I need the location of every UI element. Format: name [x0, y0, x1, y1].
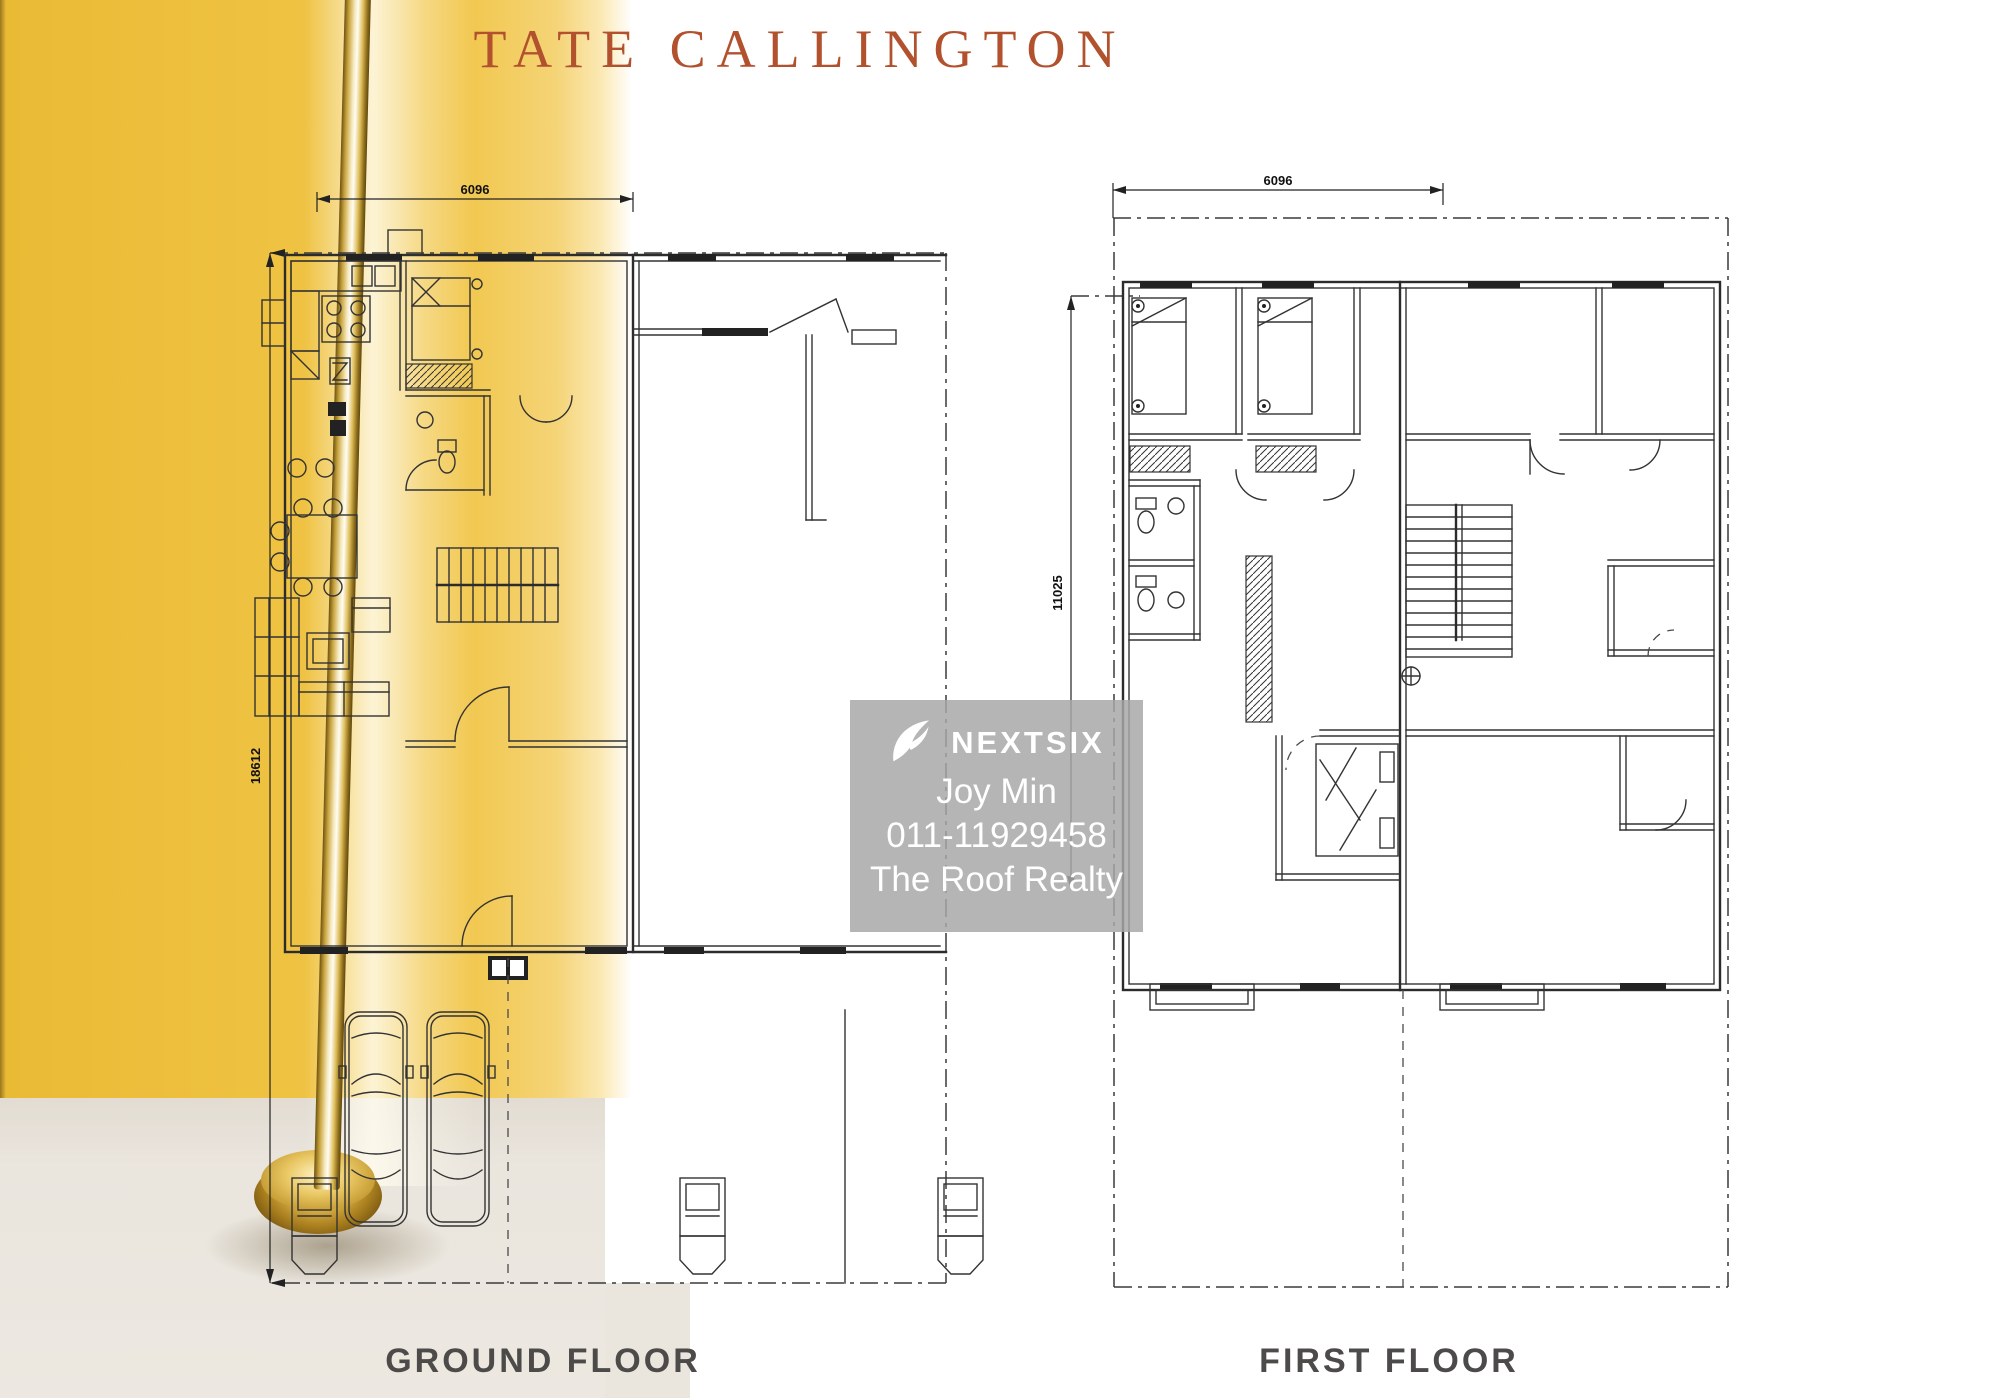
car-icon	[421, 1012, 495, 1226]
watermark-brand: NEXTSIX	[951, 725, 1105, 761]
first-lot-boundary	[1113, 218, 1728, 1287]
watermark-agent: Joy Min	[850, 770, 1143, 814]
watermark-phone: 011-11929458	[850, 814, 1143, 858]
gate-post-icon	[680, 1178, 725, 1274]
first-rear-yard	[1150, 984, 1544, 1287]
sofa-icon	[255, 598, 390, 716]
stairs-icon	[437, 548, 558, 622]
watermark-header: NEXTSIX	[850, 716, 1143, 770]
nextsix-logo-icon	[888, 716, 942, 770]
first-width-dim: 6096	[1264, 173, 1293, 188]
watermark-agency: The Roof Realty	[850, 858, 1143, 902]
car-icon	[339, 1012, 413, 1226]
ground-walls	[285, 230, 946, 954]
car-porch	[292, 958, 983, 1283]
first-walls	[1123, 281, 1720, 990]
ground-dimension-lines: 6096 18612	[248, 182, 633, 1283]
bathroom-icon	[406, 364, 572, 495]
kitchen-icon	[262, 261, 401, 436]
first-floor-label: FIRST FLOOR	[1139, 1342, 1639, 1381]
first-stairs-icon	[1406, 505, 1512, 657]
gate-post-icon	[938, 1178, 983, 1274]
first-master-bedroom	[1246, 556, 1420, 880]
page-title: TATE CALLINGTON	[385, 18, 1215, 80]
accent-panel-edge	[0, 0, 6, 1098]
first-depth-dim: 11025	[1050, 575, 1065, 610]
first-right-unit	[1406, 288, 1714, 830]
first-bedrooms	[1129, 288, 1360, 500]
first-bathrooms	[1129, 480, 1200, 640]
ground-depth-dim: 18612	[248, 748, 263, 784]
gate-post-icon	[292, 1178, 337, 1274]
flyer-canvas: TATE CALLINGTON	[0, 0, 2000, 1398]
watermark: NEXTSIX Joy Min 011-11929458 The Roof Re…	[850, 700, 1143, 932]
ground-floor-label: GROUND FLOOR	[293, 1342, 793, 1381]
ground-width-dim: 6096	[461, 182, 490, 197]
door-swing-icon	[406, 687, 627, 980]
